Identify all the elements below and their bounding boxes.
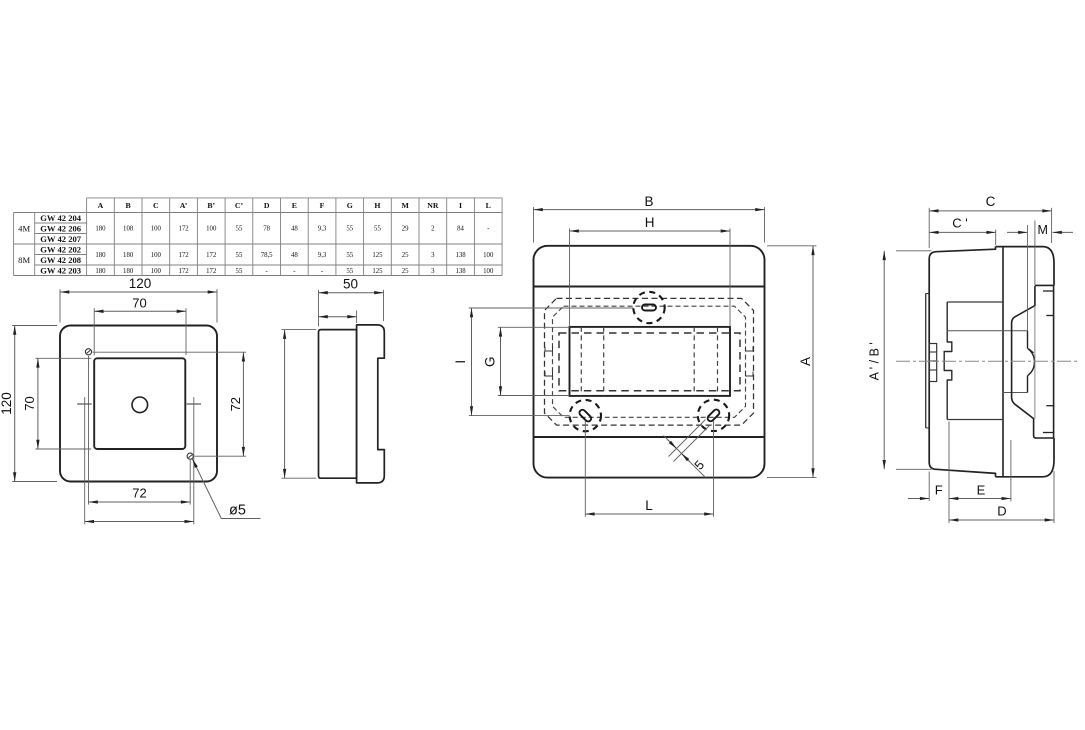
svg-text:C: C (986, 194, 996, 209)
svg-text:GW 42 204: GW 42 204 (40, 213, 82, 223)
svg-text:D: D (264, 201, 270, 210)
svg-text:55: 55 (346, 268, 353, 275)
svg-text:25: 25 (402, 268, 409, 275)
svg-text:I: I (453, 360, 468, 364)
svg-text:172: 172 (206, 268, 217, 275)
svg-text:172: 172 (178, 226, 189, 233)
svg-text:100: 100 (151, 268, 162, 275)
svg-text:9,3: 9,3 (318, 226, 327, 233)
svg-text:172: 172 (178, 252, 189, 259)
svg-text:D: D (997, 503, 1006, 518)
svg-text:GW 42 202: GW 42 202 (40, 244, 81, 254)
svg-text:84: 84 (457, 226, 464, 233)
svg-text:108: 108 (123, 226, 134, 233)
svg-text:78,5: 78,5 (261, 252, 273, 259)
svg-text:125: 125 (372, 268, 383, 275)
svg-text:55: 55 (346, 252, 353, 259)
svg-text:72: 72 (228, 397, 243, 411)
svg-text:55: 55 (374, 226, 381, 233)
svg-text:C ': C ' (952, 216, 967, 231)
svg-text:ø5: ø5 (229, 503, 246, 519)
svg-text:3: 3 (431, 252, 435, 259)
svg-text:29: 29 (402, 226, 409, 233)
svg-text:E: E (977, 482, 986, 497)
svg-text:100: 100 (151, 252, 162, 259)
svg-text:25: 25 (402, 252, 409, 259)
svg-text:NR: NR (427, 201, 439, 210)
svg-text:70: 70 (132, 295, 146, 310)
svg-text:F: F (320, 201, 325, 210)
svg-text:78: 78 (263, 226, 270, 233)
svg-text:9,3: 9,3 (318, 252, 327, 259)
svg-text:2: 2 (431, 226, 435, 233)
svg-text:B: B (644, 194, 653, 209)
svg-text:8M: 8M (18, 255, 30, 265)
svg-text:55: 55 (236, 226, 243, 233)
svg-text:180: 180 (95, 268, 106, 275)
svg-text:55: 55 (346, 226, 353, 233)
svg-text:C: C (153, 201, 159, 210)
svg-text:A’: A’ (180, 201, 188, 210)
svg-text:L: L (486, 201, 491, 210)
svg-text:C’: C’ (235, 201, 244, 210)
svg-text:100: 100 (483, 252, 494, 259)
svg-text:100: 100 (151, 226, 162, 233)
svg-text:I: I (459, 201, 462, 210)
svg-text:F: F (935, 482, 943, 497)
svg-text:3: 3 (431, 268, 435, 275)
svg-text:120: 120 (129, 276, 152, 291)
svg-text:120: 120 (0, 392, 14, 415)
svg-text:A: A (798, 357, 813, 366)
svg-text:4M: 4M (18, 223, 30, 233)
svg-text:180: 180 (123, 268, 134, 275)
svg-text:48: 48 (291, 252, 298, 259)
svg-text:138: 138 (455, 252, 466, 259)
svg-text:G: G (483, 356, 498, 367)
svg-text:55: 55 (236, 252, 243, 259)
svg-text:180: 180 (95, 226, 106, 233)
svg-text:172: 172 (178, 268, 189, 275)
svg-text:138: 138 (455, 268, 466, 275)
svg-text:GW 42 206: GW 42 206 (40, 223, 82, 233)
svg-text:100: 100 (483, 268, 494, 275)
svg-text:70: 70 (22, 396, 37, 410)
svg-text:H: H (374, 201, 380, 210)
svg-text:G: G (347, 201, 353, 210)
svg-text:48: 48 (291, 226, 298, 233)
svg-text:GW 42 208: GW 42 208 (40, 255, 82, 265)
svg-text:125: 125 (372, 252, 383, 259)
svg-text:L: L (645, 498, 653, 513)
svg-text:100: 100 (206, 226, 217, 233)
svg-text:B’: B’ (207, 201, 215, 210)
svg-text:172: 172 (206, 252, 217, 259)
svg-text:B: B (126, 201, 131, 210)
svg-text:A ' / B ': A ' / B ' (867, 342, 881, 380)
svg-text:H: H (645, 215, 655, 230)
svg-text:GW 42 203: GW 42 203 (40, 265, 81, 275)
svg-text:M: M (401, 201, 409, 210)
svg-text:A: A (98, 201, 104, 210)
svg-text:E: E (292, 201, 297, 210)
svg-text:55: 55 (236, 268, 243, 275)
svg-text:50: 50 (343, 276, 358, 291)
svg-text:72: 72 (132, 486, 146, 501)
svg-text:GW 42 207: GW 42 207 (40, 234, 82, 244)
svg-text:180: 180 (95, 252, 106, 259)
svg-text:M: M (1037, 223, 1047, 237)
svg-text:180: 180 (123, 252, 134, 259)
